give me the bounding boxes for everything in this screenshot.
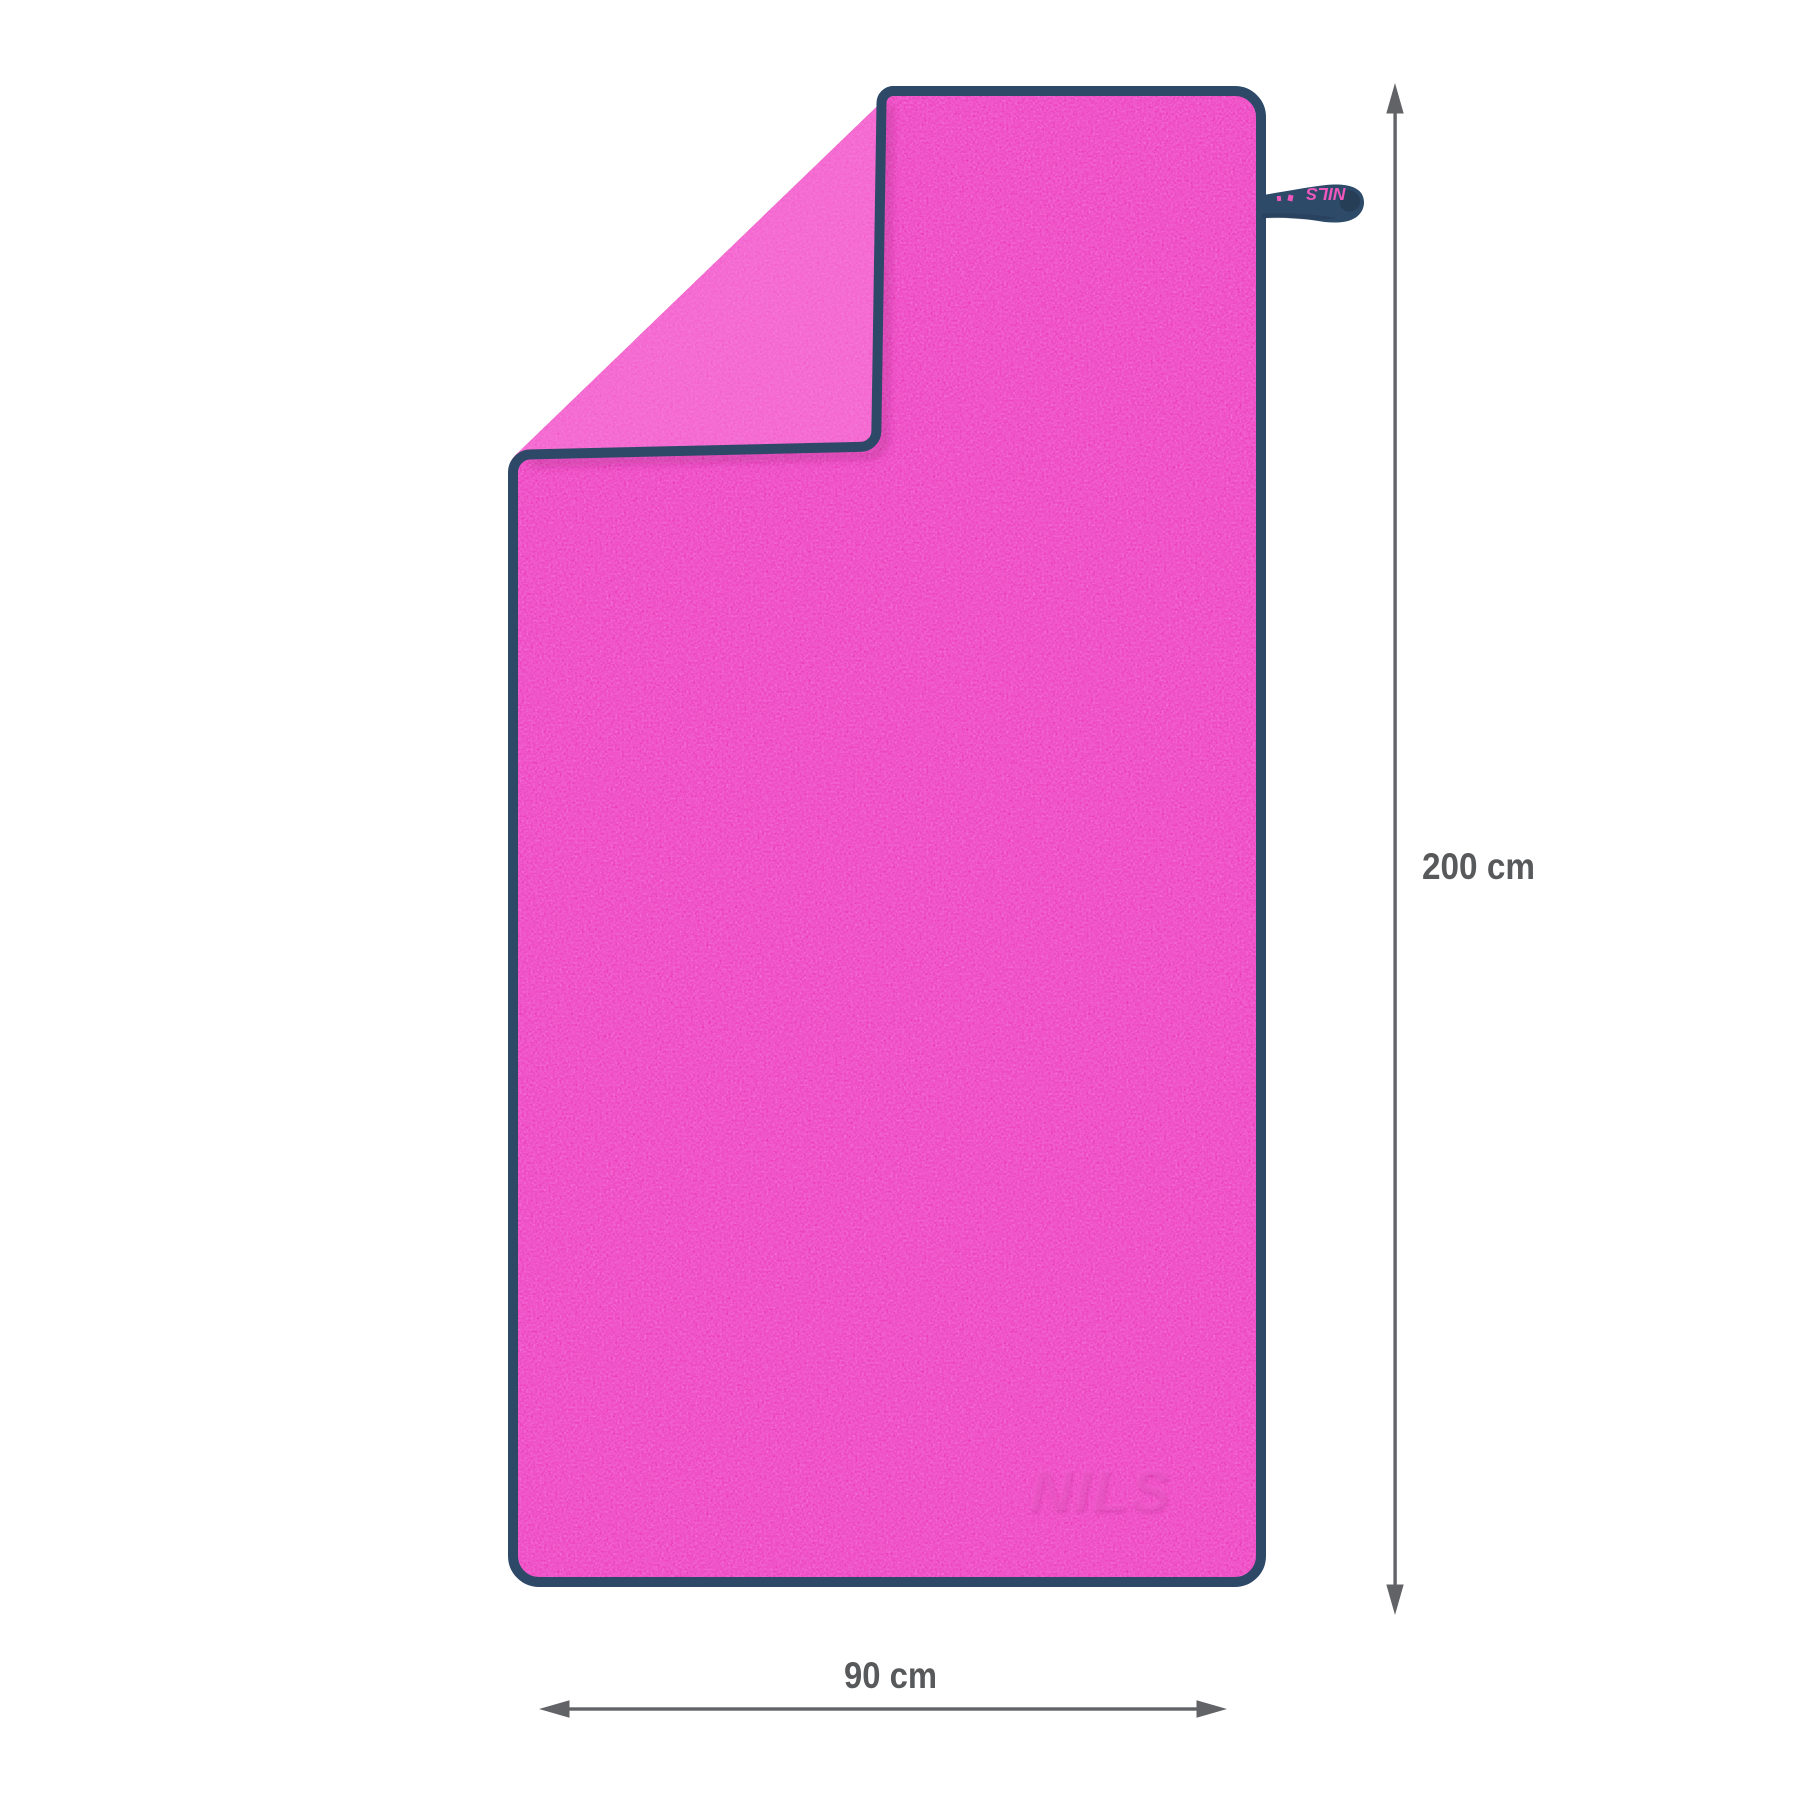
svg-text:90 cm: 90 cm: [844, 1655, 937, 1696]
svg-text:200 cm: 200 cm: [1422, 846, 1535, 887]
svg-text:NILS: NILS: [1306, 184, 1346, 204]
svg-text:NILS: NILS: [1029, 1457, 1171, 1523]
